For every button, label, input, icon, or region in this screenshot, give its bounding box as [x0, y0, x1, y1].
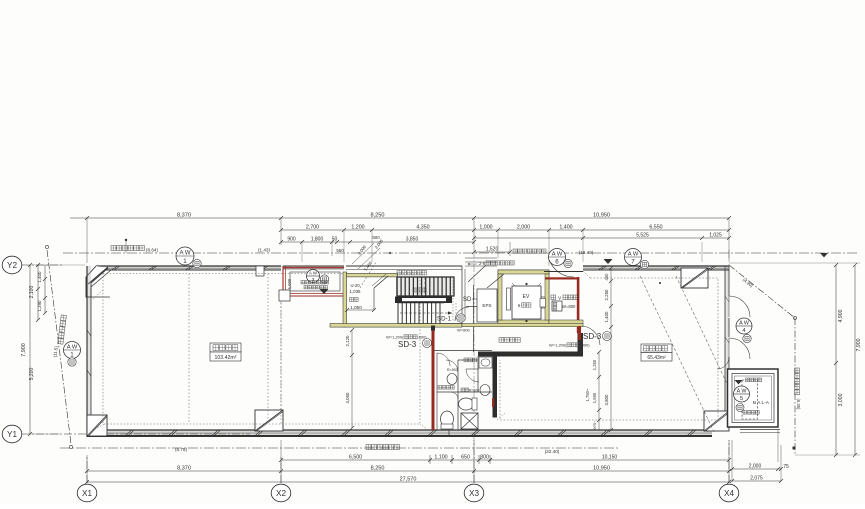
svg-text:75: 75 [783, 464, 789, 470]
svg-text:A W: A W [737, 389, 748, 395]
svg-text:1,400: 1,400 [559, 225, 572, 231]
svg-text:1,000: 1,000 [287, 278, 292, 289]
svg-text:550: 550 [336, 248, 344, 253]
svg-text:(19.48): (19.48) [579, 250, 594, 255]
svg-text:1,400: 1,400 [37, 271, 42, 283]
svg-text:103.42m²: 103.42m² [215, 355, 237, 361]
svg-text:3,850: 3,850 [406, 237, 419, 243]
svg-text:1,200: 1,200 [351, 225, 364, 231]
svg-text:A W: A W [552, 252, 563, 258]
svg-text:2,000: 2,000 [749, 464, 762, 470]
svg-text:U-20: U-20 [350, 283, 360, 288]
svg-text:7: 7 [631, 259, 635, 266]
svg-text:5: 5 [740, 396, 743, 402]
svg-text:(6.78): (6.78) [175, 447, 187, 452]
svg-text:10,950: 10,950 [593, 466, 610, 472]
svg-text:4,350: 4,350 [416, 225, 429, 231]
svg-text:2,100: 2,100 [29, 286, 35, 299]
svg-text:X3: X3 [469, 489, 479, 498]
svg-text:1,800: 1,800 [311, 237, 324, 243]
svg-text:A W: A W [309, 271, 318, 276]
svg-text:2,120: 2,120 [345, 335, 350, 347]
svg-text:SD-1: SD-1 [437, 316, 452, 323]
svg-text:SD: SD [463, 297, 472, 303]
svg-text:R=500: R=500 [447, 368, 458, 372]
svg-text:1,100: 1,100 [434, 455, 447, 461]
svg-text:1,050: 1,050 [350, 305, 362, 310]
svg-text::800): :800) [581, 343, 591, 348]
svg-text:1,390: 1,390 [37, 300, 42, 312]
svg-text:6: 6 [555, 259, 559, 266]
svg-text:5,200: 5,200 [29, 368, 35, 381]
svg-text:2,250: 2,250 [604, 289, 609, 301]
svg-text:2-8: 2-8 [479, 261, 486, 266]
svg-text:1,025: 1,025 [709, 233, 722, 239]
svg-text:(1.43): (1.43) [258, 248, 270, 253]
svg-text:B A L-A: B A L-A [753, 400, 770, 406]
svg-text:EPS: EPS [482, 303, 491, 308]
svg-text:1,000: 1,000 [479, 225, 492, 231]
svg-text:(22.40): (22.40) [545, 449, 560, 454]
svg-text:8,250: 8,250 [371, 466, 385, 472]
svg-text:7,900: 7,900 [21, 343, 27, 357]
svg-text:(8.64): (8.64) [146, 248, 158, 253]
svg-text:5,525: 5,525 [636, 233, 649, 239]
svg-text:W=800: W=800 [457, 328, 471, 333]
svg-text:3,800: 3,800 [604, 394, 609, 406]
svg-text:X2: X2 [276, 489, 286, 498]
svg-text:EV: EV [523, 294, 530, 300]
svg-text:W=1,200(: W=1,200( [386, 335, 404, 340]
svg-text:450: 450 [604, 273, 609, 281]
svg-text:1,035: 1,035 [350, 289, 362, 294]
svg-text:10,150: 10,150 [602, 455, 618, 461]
svg-text:1,750~: 1,750~ [585, 388, 590, 401]
svg-text:4,900: 4,900 [838, 309, 844, 322]
svg-text:W=1,200(: W=1,200( [549, 343, 567, 348]
svg-text:27,570: 27,570 [400, 477, 417, 483]
svg-text:6,550: 6,550 [649, 225, 662, 231]
svg-text:8,370: 8,370 [177, 213, 191, 219]
svg-text:X1: X1 [82, 489, 92, 498]
svg-text:650: 650 [461, 455, 470, 461]
svg-text:Y1: Y1 [7, 430, 17, 439]
svg-text:A W: A W [739, 321, 750, 327]
svg-text:8,370: 8,370 [177, 466, 191, 472]
svg-text:3,000: 3,000 [838, 393, 844, 406]
svg-text:X4: X4 [724, 489, 734, 498]
svg-text:Y2: Y2 [7, 261, 17, 270]
svg-text:50: 50 [332, 237, 338, 243]
svg-text:(6.35): (6.35) [796, 399, 801, 411]
svg-text:SD-3: SD-3 [583, 332, 602, 341]
svg-text:800: 800 [480, 455, 489, 461]
svg-text:A W: A W [67, 345, 78, 351]
svg-text:7,900: 7,900 [856, 338, 862, 351]
svg-text:1,520: 1,520 [486, 247, 499, 253]
svg-text:2,700: 2,700 [306, 225, 319, 231]
svg-text:R=500: R=500 [469, 389, 479, 393]
svg-text:970~: 970~ [592, 420, 597, 430]
svg-text:2,075: 2,075 [750, 476, 763, 482]
svg-text:10,950: 10,950 [593, 213, 610, 219]
svg-text:SD-3: SD-3 [398, 340, 417, 349]
svg-text:8,250: 8,250 [371, 213, 385, 219]
svg-text:65.43m²: 65.43m² [647, 355, 666, 361]
svg-text:1,550: 1,550 [592, 392, 597, 403]
svg-text:1,400: 1,400 [604, 311, 609, 323]
svg-text:1,260: 1,260 [592, 359, 597, 370]
svg-text:A W: A W [628, 252, 639, 258]
svg-text:2,000: 2,000 [517, 225, 530, 231]
svg-text:W=800: W=800 [562, 304, 576, 309]
svg-text:3,060: 3,060 [345, 392, 350, 404]
svg-text:A W: A W [179, 251, 190, 257]
svg-text:6,500: 6,500 [349, 455, 362, 461]
svg-text:1: 1 [183, 258, 187, 265]
svg-text:900: 900 [287, 237, 296, 243]
